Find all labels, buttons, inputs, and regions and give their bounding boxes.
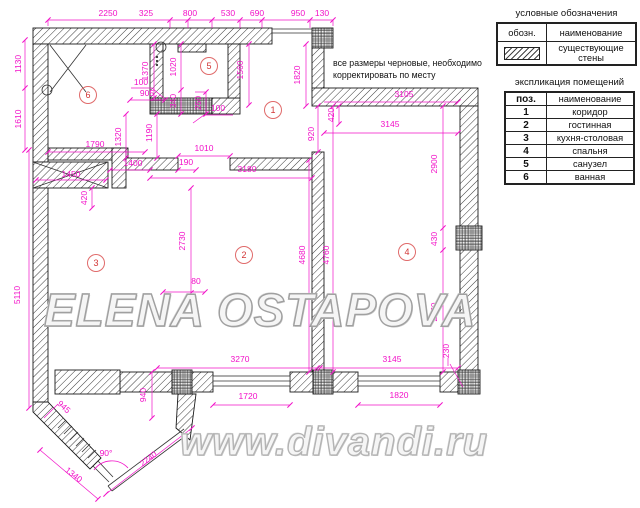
schedule-title: экспликация помещений: [504, 77, 635, 88]
dimension-label: 325: [139, 8, 153, 18]
schedule-name: коридор: [547, 106, 635, 119]
wall-stub: [112, 148, 126, 188]
legend-row: существующие стены: [497, 42, 636, 66]
dimension-label: 3145: [381, 119, 400, 129]
note-line-1: все размеры черновые, необходимо: [333, 57, 513, 69]
room-marker-number: 1: [270, 105, 275, 115]
schedule-pos: 5: [505, 158, 547, 171]
schedule-col-name: наименование: [547, 92, 635, 106]
wall-bottom-2: [192, 372, 213, 392]
note-line-2: корректировать по месту: [333, 69, 513, 81]
legend-table: обозн. наименование существующие стены: [496, 22, 637, 66]
room-marker-number: 4: [404, 247, 409, 257]
existing-walls-hatch-swatch: [504, 47, 540, 60]
legend-symbol-cell: [497, 42, 547, 66]
dimension-label: 100: [211, 103, 225, 113]
wall-top-right-pier: [312, 28, 333, 48]
note-text: все размеры черновые, необходимо коррект…: [333, 57, 513, 81]
wall-bottom-pier-2: [313, 370, 333, 394]
dimension-label: 1020: [168, 57, 178, 76]
dimension-label: 940: [138, 388, 148, 402]
dimension-label: 3145: [383, 354, 402, 364]
dimension-label: 2870: [429, 302, 439, 321]
floor-plan-page: 2250325800530690950130113016105110179013…: [0, 0, 640, 508]
wall-hall-bed-upper: [312, 48, 324, 92]
dimension-label: 420: [326, 108, 336, 122]
dimension-label: 1450: [62, 169, 81, 179]
dimension-label: 130: [315, 8, 329, 18]
legend-col-symbol: обозн.: [497, 23, 547, 42]
room-marker-number: 2: [241, 250, 246, 260]
dimension-label: 1790: [86, 139, 105, 149]
dimension-label: 1820: [390, 390, 409, 400]
schedule-row: 2 гостинная: [505, 119, 634, 132]
room-schedule-table: поз. наименование 1 коридор 2 гостинная …: [504, 91, 635, 185]
wall-bottom-left-pier: [55, 370, 120, 394]
schedule-name: гостинная: [547, 119, 635, 132]
dimension-label: 1340: [63, 465, 84, 485]
dimension-label: 530: [221, 8, 235, 18]
wall-bottom-corner-pier: [458, 370, 480, 394]
room-marker-number: 6: [85, 90, 90, 100]
schedule-row: 4 спальня: [505, 145, 634, 158]
schedule-pos: 2: [505, 119, 547, 132]
dimension-label: 690: [250, 8, 264, 18]
dimension-label: 420: [79, 191, 89, 205]
legend-col-name: наименование: [547, 23, 637, 42]
schedule-row: 6 ванная: [505, 171, 634, 185]
dimension-label: 80: [191, 276, 201, 286]
dimension-label: 1820: [292, 65, 302, 84]
wall-top-notch: [178, 44, 206, 52]
schedule-name: спальня: [547, 145, 635, 158]
schedule-name: санузел: [547, 158, 635, 171]
legend-label-cell: существующие стены: [547, 42, 637, 66]
room-marker-number: 5: [206, 61, 211, 71]
schedule-name: кухня-столовая: [547, 132, 635, 145]
dimension-label: 1400: [124, 158, 143, 168]
schedule-col-pos: поз.: [505, 92, 547, 106]
dimension-label: 5110: [12, 286, 22, 305]
legend-title: условные обозначения: [496, 8, 637, 19]
dimension-label: 230: [441, 344, 451, 358]
schedule-pos: 4: [505, 145, 547, 158]
dimension-label: 1190: [144, 124, 154, 143]
schedule-pos: 1: [505, 106, 547, 119]
dimension-label: 1010: [195, 143, 214, 153]
schedule-row: 1 коридор: [505, 106, 634, 119]
schedule-pos: 6: [505, 171, 547, 185]
dot: [156, 64, 157, 65]
dimension-label: 905: [140, 88, 154, 98]
dimension-tick: [103, 491, 108, 496]
legend-block: условные обозначения обозн. наименование…: [496, 8, 637, 66]
dimension-label: 800: [183, 8, 197, 18]
dimension-label: 2240: [138, 449, 159, 469]
schedule-row: 5 санузел: [505, 158, 634, 171]
dimension-label: 3270: [231, 354, 250, 364]
dimension-label: 2730: [177, 231, 187, 250]
wall-bottom-4: [333, 372, 358, 392]
dimension-label: 250: [193, 96, 203, 110]
schedule-row: 3 кухня-столовая: [505, 132, 634, 145]
wall-left-lower: [33, 188, 48, 410]
wall-right-pier: [456, 226, 482, 250]
schedule-name: ванная: [547, 171, 635, 185]
dimension-label: 1560: [235, 60, 245, 79]
schedule-pos: 3: [505, 132, 547, 145]
dimension-label: 1320: [113, 127, 123, 146]
wall-bottom-5: [440, 372, 460, 392]
dot: [156, 56, 157, 57]
dimension-label: 3105: [395, 89, 414, 99]
dimension-label: 1610: [13, 109, 23, 128]
bay-window-line: [98, 461, 113, 477]
wall-bottom-pier-1: [172, 370, 192, 394]
dimension-label: 190: [179, 157, 193, 167]
dimension-label: 430: [429, 232, 439, 246]
dimension-label: 90°: [100, 448, 113, 458]
wall-left-upper: [33, 44, 48, 162]
dimension-label: 100: [134, 77, 148, 87]
wall-top: [33, 28, 272, 44]
dimension-label: 3180: [238, 164, 257, 174]
dot: [156, 60, 157, 61]
dimension-label: 950: [291, 8, 305, 18]
dimension-label: 340: [168, 94, 178, 108]
dimension-line: [193, 115, 204, 123]
dimension-label: 4680: [297, 245, 307, 264]
schedule-block: экспликация помещений поз. наименование …: [504, 77, 635, 185]
wall-bottom-3: [290, 372, 313, 392]
dimension-label: 4760: [321, 245, 331, 264]
dimension-label: 2250: [99, 8, 118, 18]
dimension-label: 1130: [13, 55, 23, 74]
dimension-label: 2900: [429, 154, 439, 173]
dimension-label: 920: [306, 127, 316, 141]
room-marker-number: 3: [93, 258, 98, 268]
dimension-label: 1720: [239, 391, 258, 401]
